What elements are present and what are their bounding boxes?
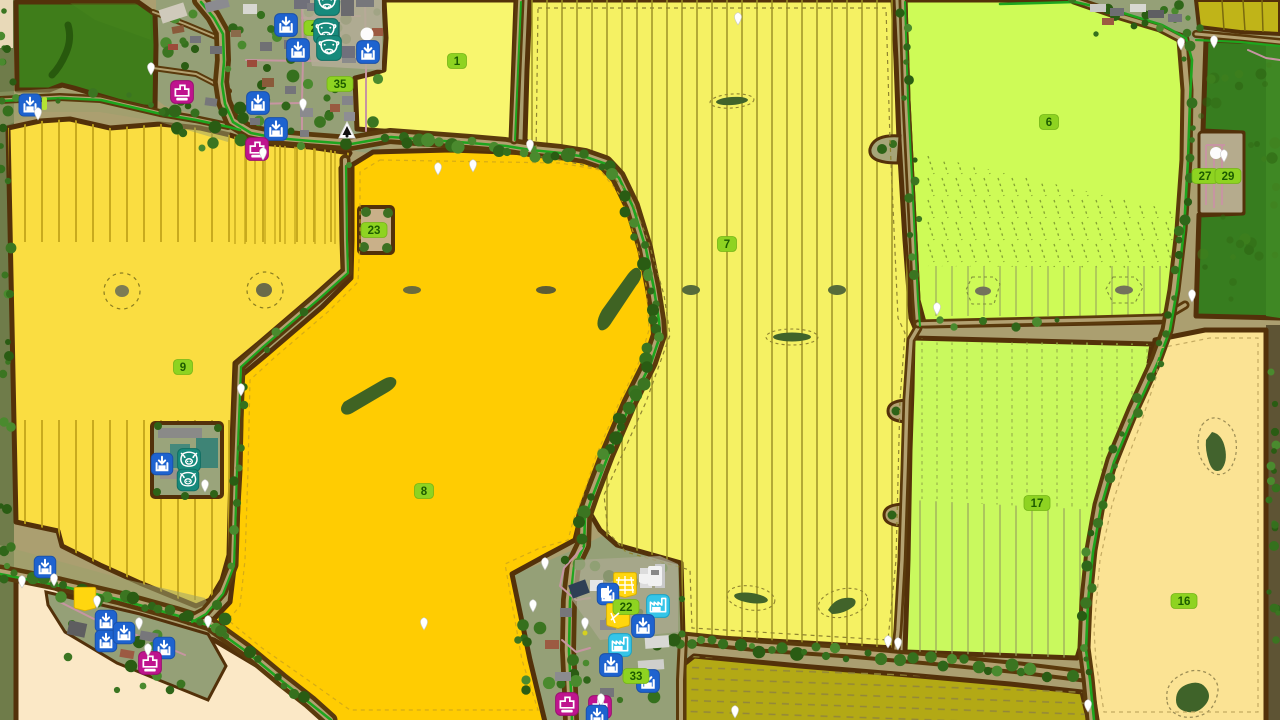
svg-text:7: 7 <box>724 239 730 251</box>
svg-text:8: 8 <box>421 486 428 498</box>
svg-text:1: 1 <box>454 56 461 68</box>
svg-text:23: 23 <box>368 225 381 237</box>
svg-text:6: 6 <box>1046 117 1052 129</box>
svg-text:9: 9 <box>180 362 186 374</box>
svg-text:35: 35 <box>334 79 347 91</box>
svg-text:17: 17 <box>1031 498 1044 510</box>
svg-text:16: 16 <box>1178 596 1191 608</box>
svg-text:33: 33 <box>630 671 643 683</box>
svg-text:27: 27 <box>1199 171 1212 183</box>
svg-text:29: 29 <box>1222 171 1235 183</box>
svg-text:22: 22 <box>620 602 633 614</box>
